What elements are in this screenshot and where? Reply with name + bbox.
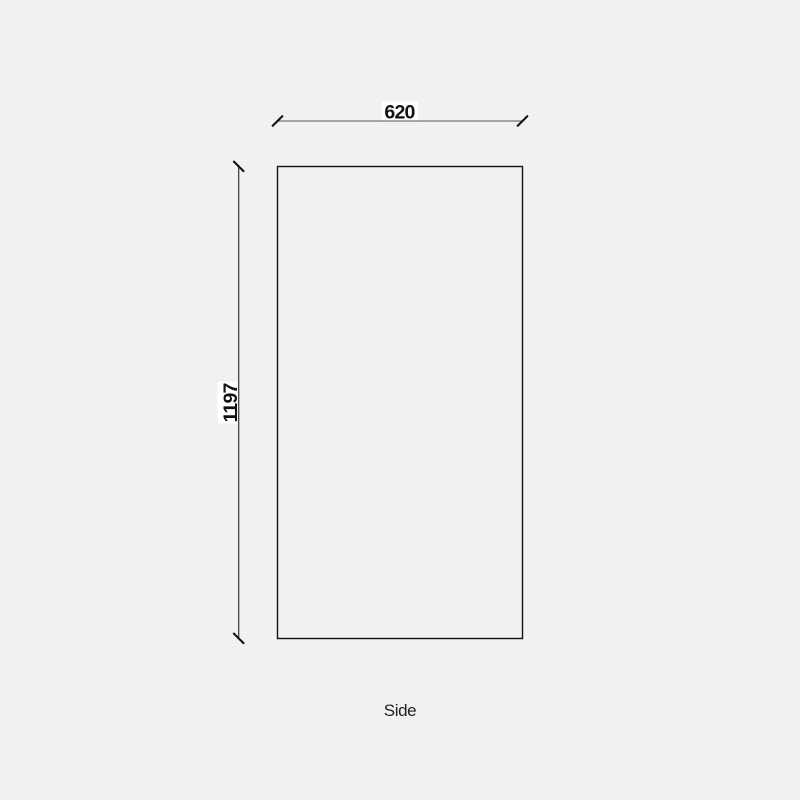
svg-text:Side: Side	[384, 701, 416, 720]
svg-text:1197: 1197	[220, 383, 242, 422]
svg-text:620: 620	[384, 102, 415, 124]
